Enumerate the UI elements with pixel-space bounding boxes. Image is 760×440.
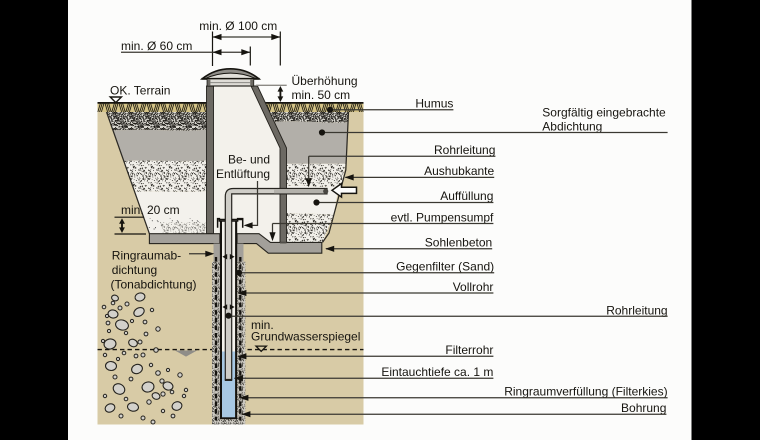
svg-text:(Tonabdichtung): (Tonabdichtung) — [111, 277, 197, 291]
svg-text:Rohrleitung: Rohrleitung — [606, 303, 667, 317]
svg-text:evtl. Pumpensumpf: evtl. Pumpensumpf — [391, 210, 494, 224]
svg-text:min. Ø 60 cm: min. Ø 60 cm — [121, 39, 192, 53]
svg-text:Be- und: Be- und — [228, 153, 270, 167]
svg-text:Humus: Humus — [415, 97, 453, 111]
svg-text:Sohlenbeton: Sohlenbeton — [425, 236, 492, 250]
svg-text:Gegenfilter (Sand): Gegenfilter (Sand) — [396, 260, 494, 274]
svg-text:Rohrleitung: Rohrleitung — [434, 143, 495, 157]
svg-text:Ringraumverfüllung (Filterkies: Ringraumverfüllung (Filterkies) — [504, 385, 667, 399]
svg-text:Vollrohr: Vollrohr — [453, 280, 494, 294]
svg-text:Überhöhung: Überhöhung — [292, 74, 358, 88]
svg-text:Auffüllung: Auffüllung — [440, 189, 493, 203]
svg-text:Aushubkante: Aushubkante — [424, 164, 494, 178]
svg-text:Filterrohr: Filterrohr — [445, 343, 493, 357]
svg-text:Bohrung: Bohrung — [621, 401, 666, 415]
svg-text:Abdichtung: Abdichtung — [542, 119, 602, 133]
svg-text:Grundwasserspiegel: Grundwasserspiegel — [251, 330, 360, 344]
svg-text:Eintauchtiefe ca. 1 m: Eintauchtiefe ca. 1 m — [381, 365, 493, 379]
svg-text:min. 20 cm: min. 20 cm — [121, 203, 180, 217]
svg-text:Entlüftung: Entlüftung — [216, 167, 270, 181]
svg-text:Sorgfältig eingebrachte: Sorgfältig eingebrachte — [542, 106, 666, 120]
svg-text:dichtung: dichtung — [112, 263, 157, 277]
svg-text:min. Ø 100 cm: min. Ø 100 cm — [199, 19, 277, 33]
svg-text:OK. Terrain: OK. Terrain — [110, 83, 170, 97]
svg-text:min. 50 cm: min. 50 cm — [292, 88, 351, 102]
svg-text:Ringraumab-: Ringraumab- — [112, 248, 181, 262]
